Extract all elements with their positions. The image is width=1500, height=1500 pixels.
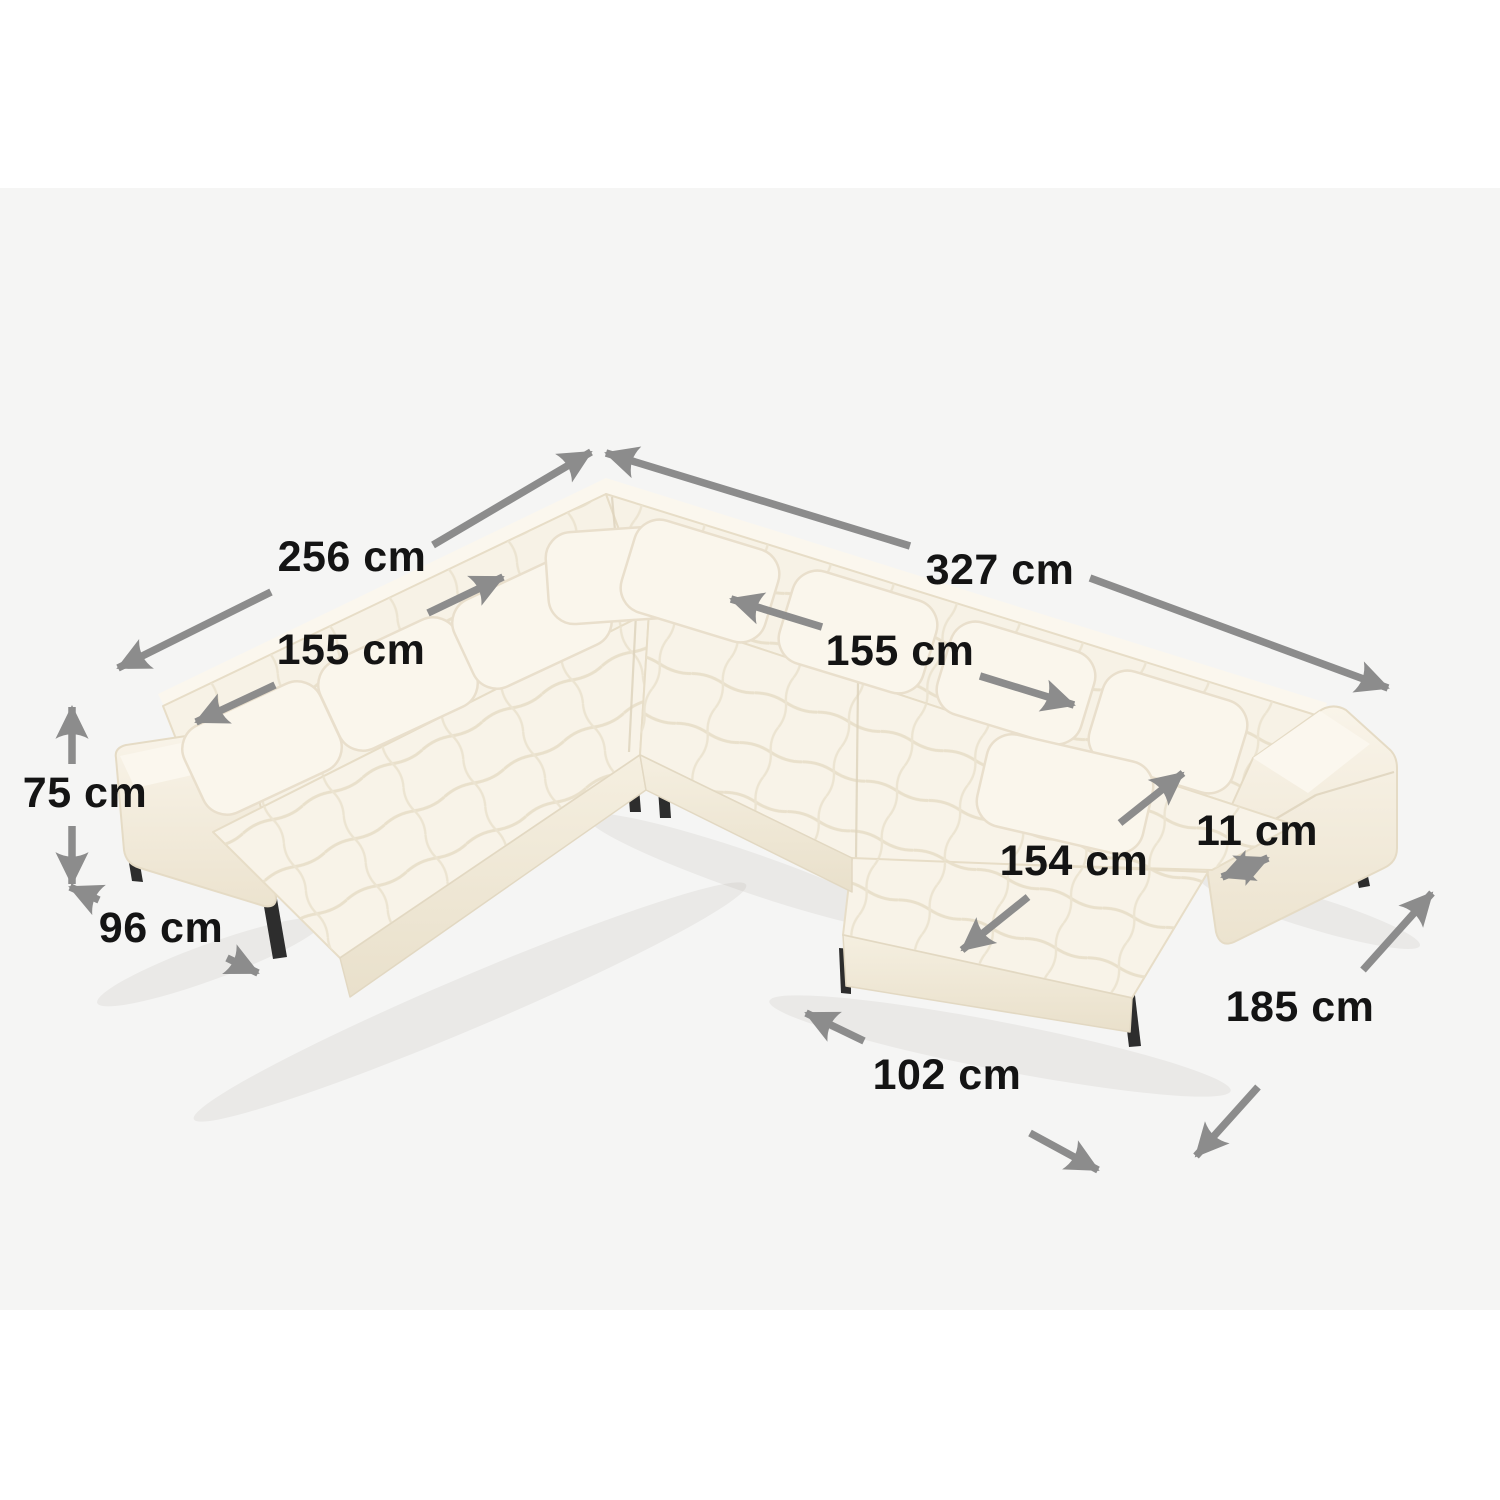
dimension-label-height: 75 cm <box>23 769 147 817</box>
dimension-label-chaise-length: 154 cm <box>1000 837 1149 885</box>
dimension-label-left-back: 256 cm <box>278 533 427 581</box>
dimension-label-right-side: 185 cm <box>1226 983 1375 1031</box>
dimension-label-armrest: 11 cm <box>1196 807 1318 855</box>
sofa-dimension-diagram: 256 cm 327 cm 155 cm 155 cm 75 cm 96 cm <box>0 0 1500 1500</box>
dimension-label-chaise-width: 102 cm <box>873 1051 1022 1099</box>
product-image-stage: 256 cm 327 cm 155 cm 155 cm 75 cm 96 cm <box>0 0 1500 1500</box>
dimension-label-depth: 96 cm <box>99 904 223 952</box>
dimension-label-right-back: 327 cm <box>926 546 1075 594</box>
dimension-label-right-seat: 155 cm <box>826 627 975 675</box>
dimension-label-left-seat: 155 cm <box>277 626 426 674</box>
